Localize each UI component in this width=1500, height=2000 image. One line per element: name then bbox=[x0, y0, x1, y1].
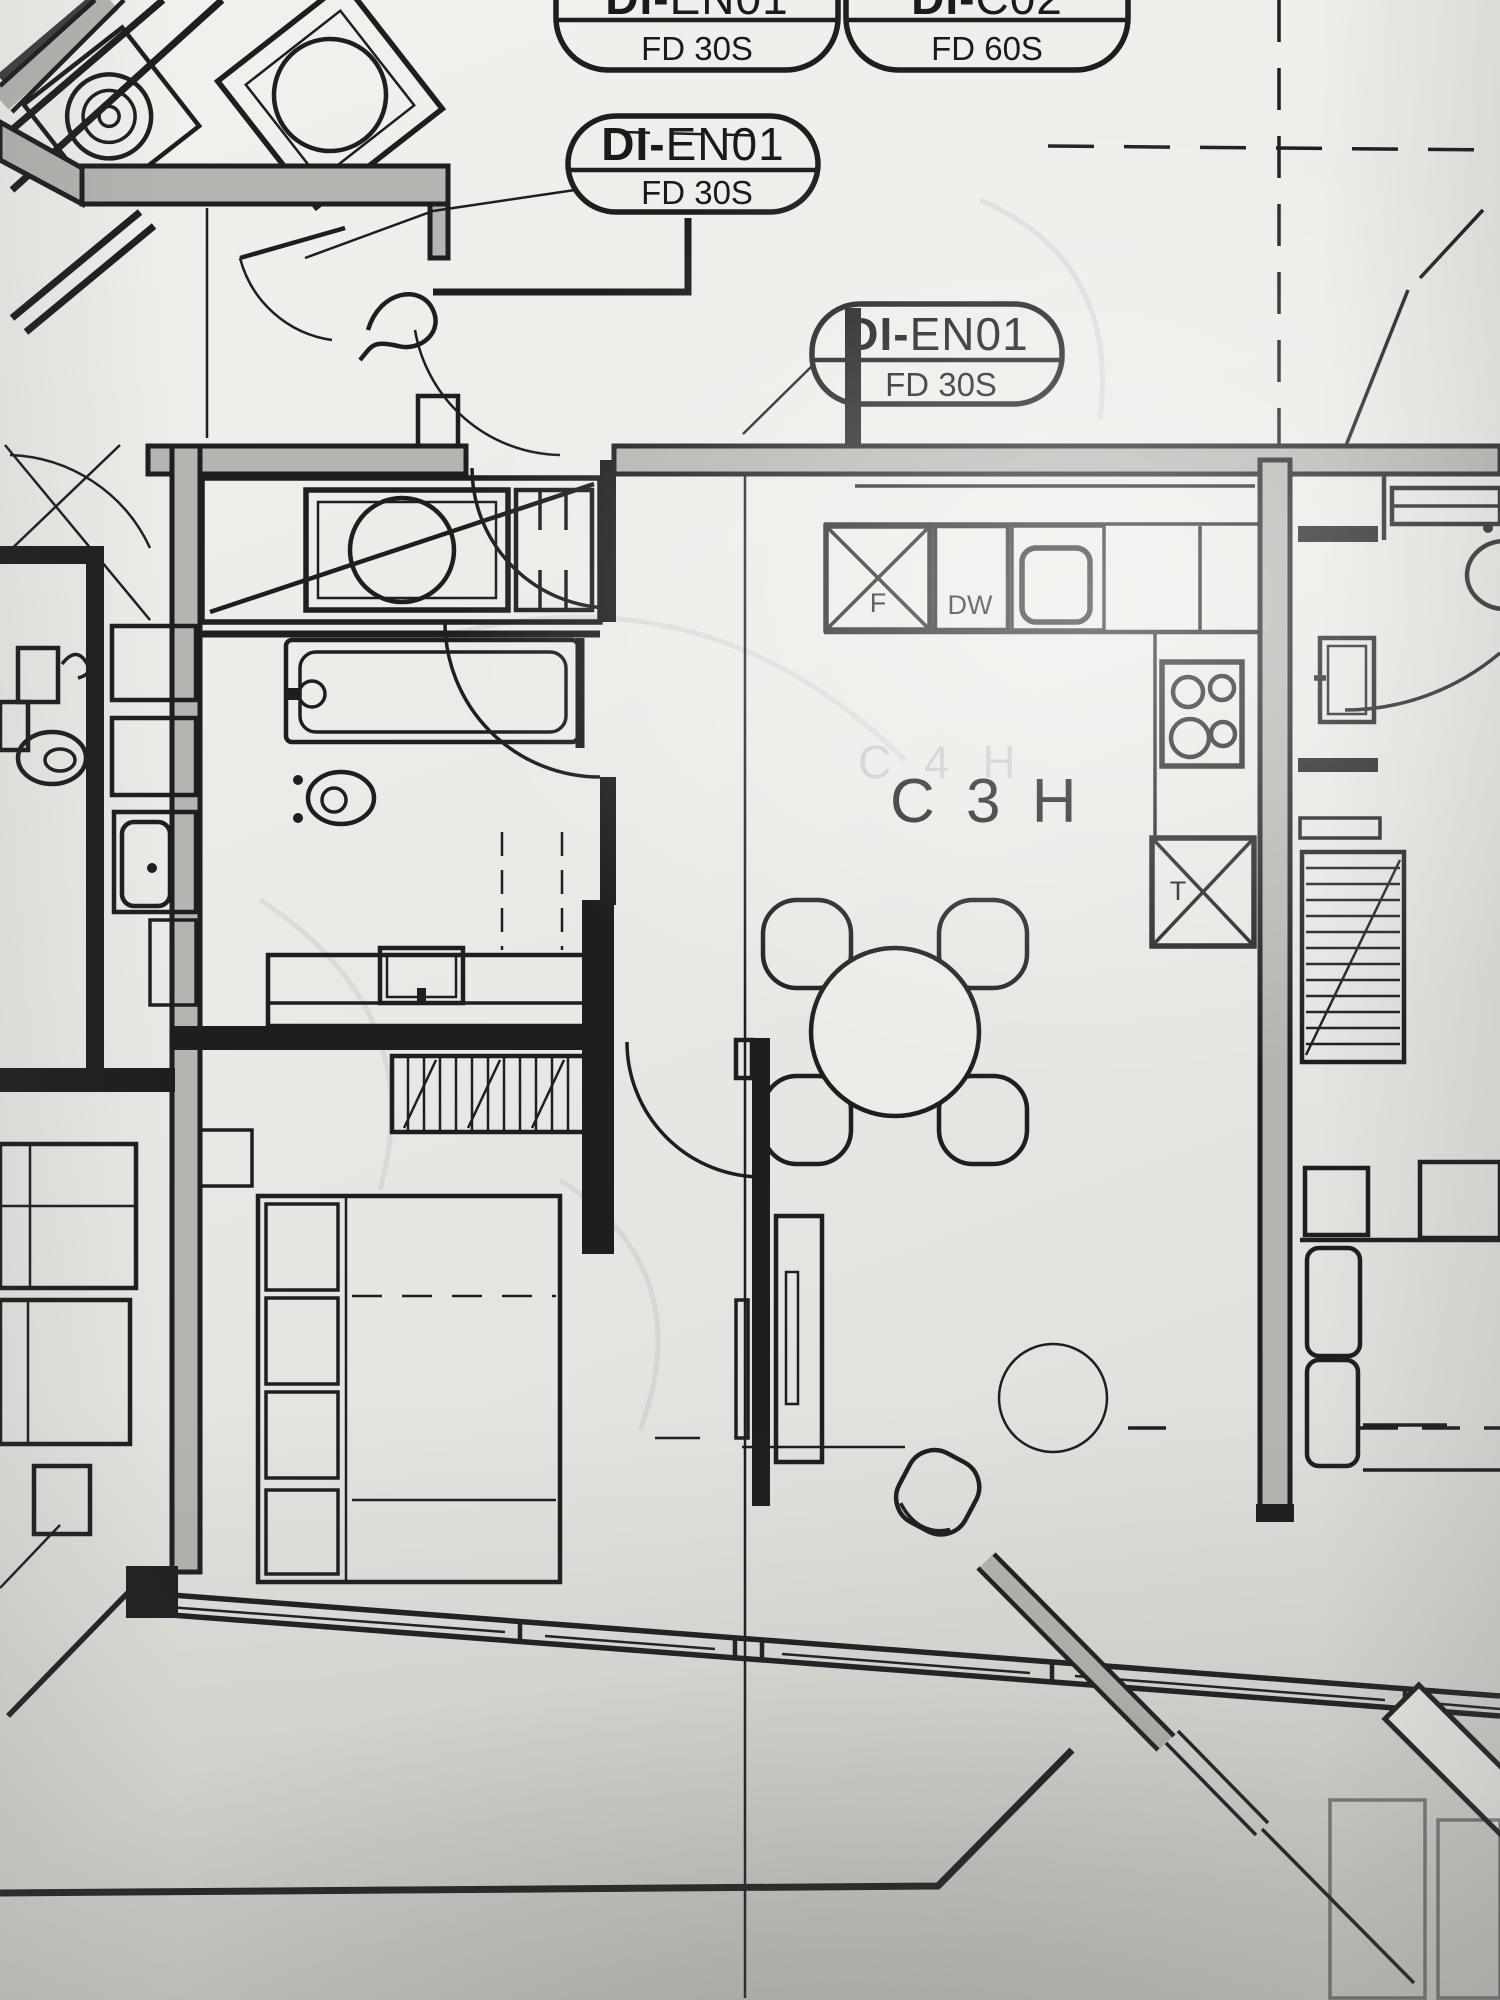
door-tag-rating: FD 30S bbox=[885, 366, 997, 403]
neighbour-unit-right bbox=[1298, 474, 1500, 1470]
door-swing-arc bbox=[1345, 653, 1500, 710]
door-tag-top-left: DI-EN01 FD 30S bbox=[556, 0, 838, 70]
door-tag-top-right: DI-C02 FD 60S bbox=[846, 0, 1128, 70]
corridor-wall-stub bbox=[433, 218, 688, 292]
toilet bbox=[293, 772, 374, 824]
door-tag-corridor: DI-EN01 FD 30S bbox=[568, 116, 818, 212]
lounge-chair bbox=[886, 1440, 989, 1544]
bed bbox=[258, 1196, 560, 1582]
sink-unit bbox=[1012, 526, 1104, 630]
balcony-floor-panel bbox=[1330, 1800, 1425, 1998]
round-rug bbox=[999, 1344, 1107, 1452]
dishwasher-label: DW bbox=[948, 590, 993, 620]
hall-door-arc bbox=[627, 1042, 762, 1177]
wardrobe-hatched bbox=[1302, 852, 1404, 1062]
door-tag-code: DI-EN01 bbox=[605, 0, 788, 24]
tap-icon bbox=[62, 654, 89, 678]
toilet-partial bbox=[1467, 523, 1500, 609]
tall-unit: T bbox=[1152, 838, 1254, 946]
door-tag-rating: FD 60S bbox=[931, 30, 1043, 67]
cistern bbox=[18, 648, 58, 702]
shelf bbox=[1300, 818, 1380, 838]
nightstand bbox=[200, 1130, 252, 1186]
room-label-c3h: C 3 H bbox=[890, 767, 1083, 836]
left-unit-furniture bbox=[0, 1144, 136, 1534]
door-tag-code: DI-EN01 bbox=[845, 308, 1028, 360]
bathroom bbox=[202, 478, 600, 1026]
dining-table-with-chairs bbox=[763, 900, 1027, 1164]
window-wall-band bbox=[132, 1592, 1500, 1716]
dishwasher-unit: DW bbox=[935, 526, 1008, 630]
diagonal-party-wall bbox=[978, 1554, 1414, 1983]
door-tag-code-suffix: EN01 bbox=[666, 118, 785, 170]
balcony-floor-panel bbox=[1438, 1820, 1500, 1998]
tag-leader-line bbox=[743, 366, 812, 434]
door-tag-code-prefix: DI- bbox=[911, 0, 975, 24]
door-tag-code-prefix: DI- bbox=[605, 0, 669, 24]
floor-plan-photo: DI-EN01 FD 30S DI-C02 FD 60S DI-EN01 FD … bbox=[0, 0, 1500, 2000]
balcony bbox=[0, 1525, 1500, 1998]
basin-icon bbox=[360, 294, 436, 360]
door-tag-code-suffix: EN01 bbox=[670, 0, 789, 24]
bedroom bbox=[200, 1056, 600, 1582]
right-unit-furniture bbox=[1300, 1162, 1500, 1470]
fridge-unit: F bbox=[826, 526, 930, 630]
door-tag-code-prefix: DI- bbox=[601, 118, 665, 170]
labels: C 4 H C 3 H bbox=[858, 736, 1083, 836]
door-tag-rating: FD 30S bbox=[641, 30, 753, 67]
fridge-label: F bbox=[870, 588, 887, 618]
neighbour-unit-top-left bbox=[0, 0, 448, 360]
washer-dryer-closet bbox=[210, 484, 594, 612]
vanity-sink bbox=[268, 948, 588, 1026]
door-tag-code-suffix: EN01 bbox=[910, 308, 1029, 360]
door-tag-code-suffix: C02 bbox=[975, 0, 1062, 24]
floor-plan-canvas: DI-EN01 FD 30S DI-C02 FD 60S DI-EN01 FD … bbox=[0, 0, 1500, 2000]
wardrobe-hatched bbox=[392, 1056, 600, 1132]
door-tag-code: DI-C02 bbox=[911, 0, 1063, 24]
corridor-door-arc bbox=[415, 330, 560, 455]
tall-unit-label: T bbox=[1170, 876, 1187, 906]
kitchen: F DW T bbox=[824, 524, 1258, 946]
door-tag-rating: FD 30S bbox=[641, 174, 753, 211]
neighbour-unit-left bbox=[0, 445, 196, 1534]
hob-unit bbox=[1162, 662, 1242, 766]
balcony-edge bbox=[0, 1750, 1072, 1893]
door-swing-arc bbox=[240, 258, 332, 340]
door-tag-code: DI-EN01 bbox=[601, 118, 784, 170]
bathtub bbox=[286, 638, 580, 748]
